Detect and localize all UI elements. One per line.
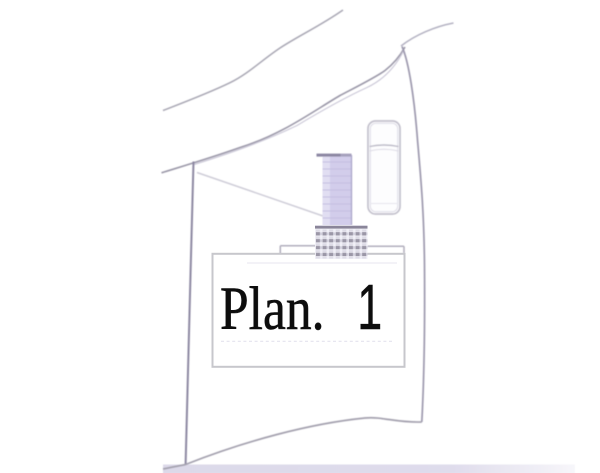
svg-text:Plan.: Plan.	[220, 276, 325, 343]
svg-text:1: 1	[357, 271, 382, 343]
